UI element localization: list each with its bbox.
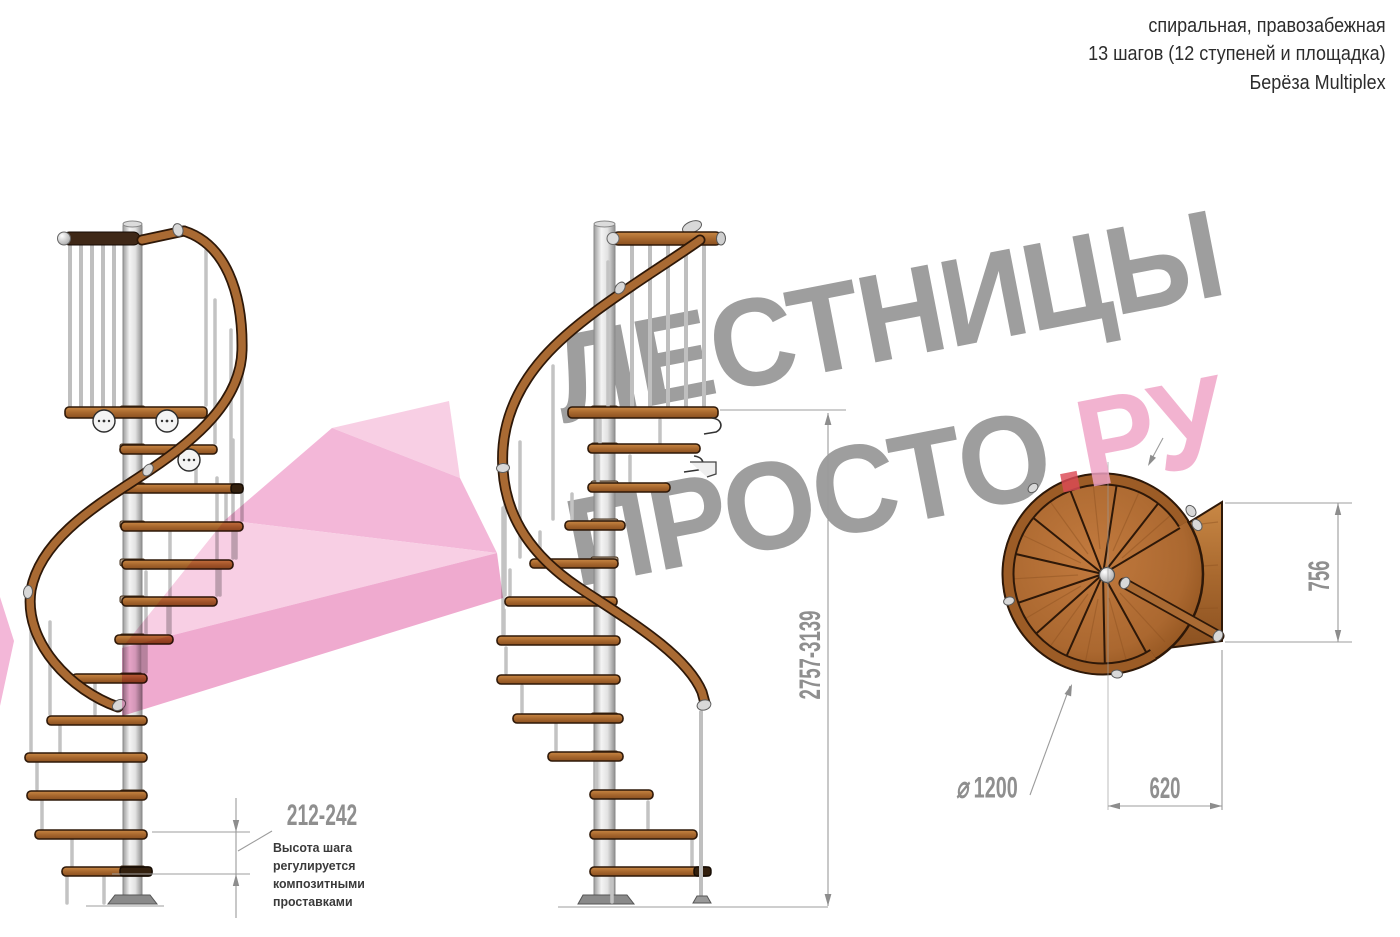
dim-landing-width: 620 [1149,772,1180,806]
landing-handrail [612,232,722,245]
diameter-symbol: ⌀ [956,772,968,805]
landing-platform [568,407,718,418]
landing-platform [65,407,207,418]
watermark-arrow-fragment [0,597,14,706]
title-type: спиральная, правозабежная [1088,12,1386,40]
landing-handrail [63,232,140,245]
product-title-block: спиральная, правозабежная 13 шагов (12 с… [1088,12,1386,97]
title-steps: 13 шагов (12 ступеней и площадка) [1088,40,1386,68]
note-line: Высота шага [273,839,365,857]
pole-base [108,895,157,904]
watermark-ru-pink: РУ [1065,350,1237,515]
landing-railing [607,218,726,406]
center-pole-plan [1100,568,1115,583]
diameter-value: 1200 [974,772,1018,805]
dim-step-height: 212-242 [287,799,357,833]
note-line: проставками [273,893,365,911]
dim-total-height: 2757-3139 [794,611,828,700]
note-line: композитными [273,875,365,893]
drawing-canvas: ЛЕСТНИЦЫ ПРОСТО.РУ [0,0,1400,937]
step-height-note: Высота шага регулируется композитными пр… [273,839,365,911]
title-material: Берёза Multiplex [1088,69,1386,97]
dim-landing-side: 756 [1303,560,1337,591]
watermark-arrow [0,401,503,716]
dim-diameter: ⌀ 1200 [956,771,1017,806]
note-line: регулируется [273,857,365,875]
pole-base [578,895,634,904]
